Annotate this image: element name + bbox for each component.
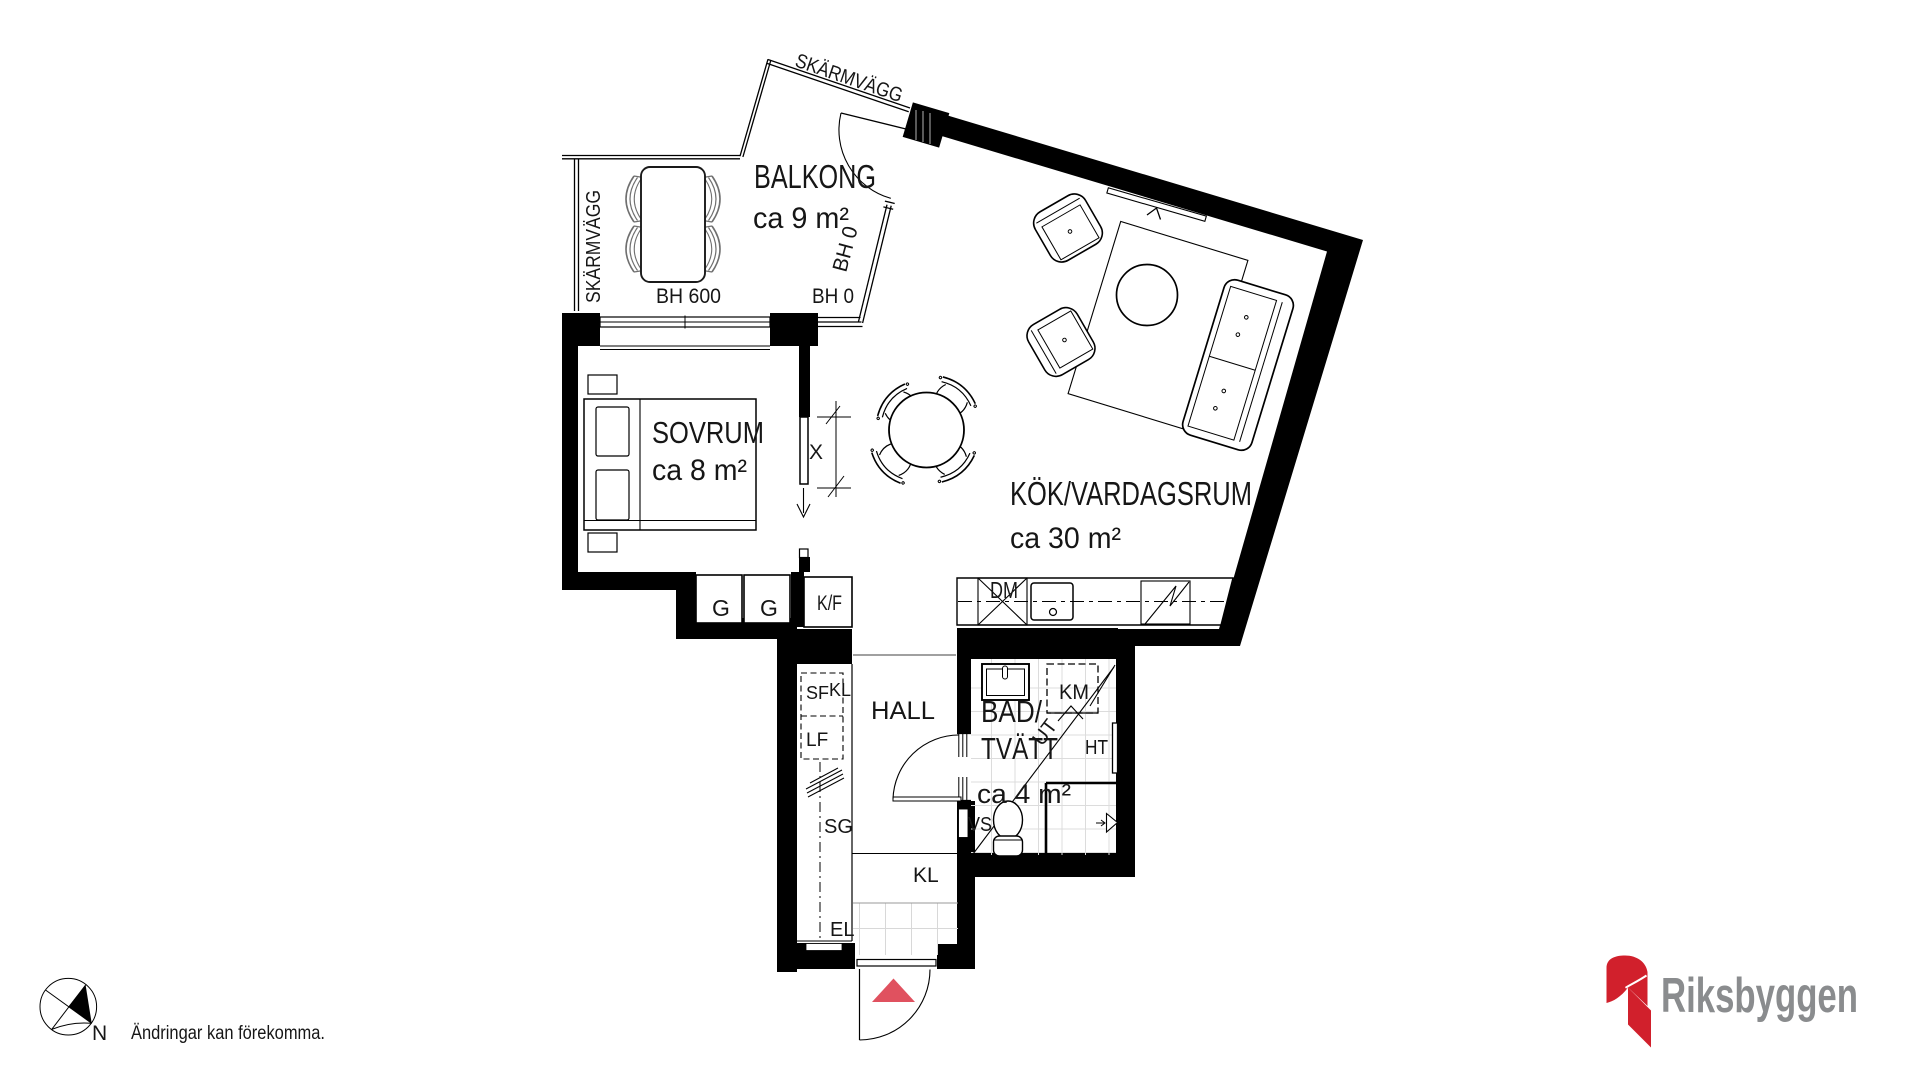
svg-text:BALKONG: BALKONG bbox=[754, 158, 876, 195]
svg-text:X: X bbox=[809, 441, 823, 464]
svg-text:KM: KM bbox=[1059, 681, 1089, 704]
svg-text:LF: LF bbox=[806, 730, 828, 751]
svg-text:SF: SF bbox=[806, 683, 829, 703]
svg-text:G: G bbox=[712, 595, 730, 621]
svg-text:KL: KL bbox=[829, 680, 851, 700]
svg-text:BH 0: BH 0 bbox=[812, 285, 854, 308]
svg-text:BAD/: BAD/ bbox=[981, 694, 1042, 729]
svg-text:N: N bbox=[92, 1022, 107, 1045]
svg-text:KÖK/VARDAGSRUM: KÖK/VARDAGSRUM bbox=[1010, 475, 1252, 512]
svg-text:KL: KL bbox=[913, 864, 939, 887]
svg-text:SKÄRMVÄGG: SKÄRMVÄGG bbox=[583, 190, 605, 303]
svg-text:K/F: K/F bbox=[817, 592, 842, 615]
svg-text:Ändringar kan förekomma.: Ändringar kan förekomma. bbox=[131, 1023, 325, 1044]
svg-text:ca 30 m²: ca 30 m² bbox=[1010, 522, 1121, 555]
svg-text:EL: EL bbox=[830, 919, 854, 941]
svg-text:VS: VS bbox=[968, 814, 992, 836]
svg-text:BH 600: BH 600 bbox=[656, 285, 721, 308]
svg-text:SOVRUM: SOVRUM bbox=[652, 415, 764, 450]
svg-text:ca 9 m²: ca 9 m² bbox=[753, 202, 849, 235]
svg-text:ca 4 m²: ca 4 m² bbox=[977, 779, 1071, 809]
svg-text:TVÄTT: TVÄTT bbox=[981, 731, 1058, 766]
svg-text:HT: HT bbox=[1085, 737, 1108, 759]
svg-text:Riksbyggen: Riksbyggen bbox=[1661, 969, 1858, 1023]
svg-text:SG: SG bbox=[824, 816, 853, 838]
svg-text:HALL: HALL bbox=[871, 697, 935, 725]
svg-text:G: G bbox=[760, 595, 778, 621]
svg-text:ca 8 m²: ca 8 m² bbox=[652, 454, 747, 487]
svg-text:DM: DM bbox=[990, 577, 1018, 603]
